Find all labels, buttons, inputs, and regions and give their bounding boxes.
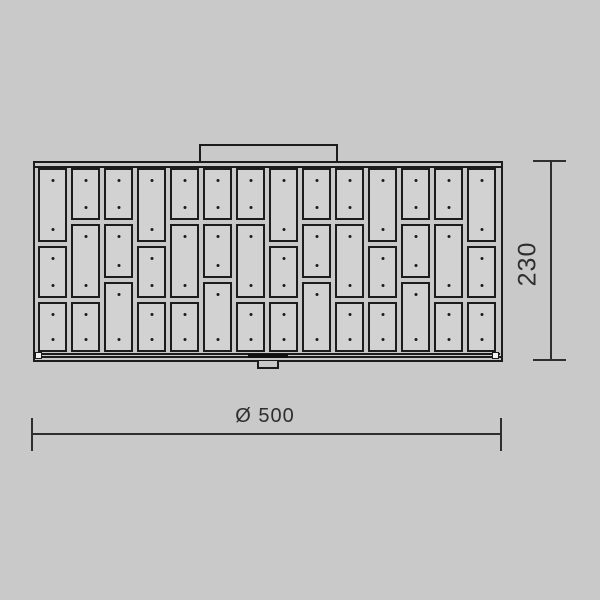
panel xyxy=(104,168,133,220)
height-dimension-line xyxy=(550,161,552,361)
panel xyxy=(368,168,397,242)
panel xyxy=(236,302,265,352)
panel xyxy=(38,302,67,352)
panel xyxy=(71,302,100,352)
panel xyxy=(335,224,364,298)
panel xyxy=(401,168,430,220)
width-dimension-tick-right xyxy=(500,418,502,451)
panel xyxy=(434,168,463,220)
panel xyxy=(71,224,100,298)
panel xyxy=(38,168,67,242)
panel xyxy=(467,246,496,298)
panel xyxy=(203,282,232,352)
panel xyxy=(368,246,397,298)
panel xyxy=(203,224,232,278)
height-dimension-tick-top xyxy=(533,160,566,162)
panel xyxy=(38,246,67,298)
bottom-mount-tab xyxy=(257,361,279,369)
width-dimension-label: Ø 500 xyxy=(235,406,294,426)
panel xyxy=(434,224,463,298)
panel xyxy=(236,224,265,298)
panel xyxy=(434,302,463,352)
panel xyxy=(269,246,298,298)
panel xyxy=(368,302,397,352)
panel xyxy=(170,168,199,220)
panel xyxy=(170,224,199,298)
panel xyxy=(467,168,496,242)
panel xyxy=(467,302,496,352)
bottom-left-notch xyxy=(35,352,42,359)
panel xyxy=(137,302,166,352)
panel xyxy=(104,282,133,352)
panel xyxy=(236,168,265,220)
panel xyxy=(137,168,166,242)
height-dimension-label: 230 xyxy=(516,242,541,287)
panel xyxy=(302,224,331,278)
width-dimension-line xyxy=(31,433,502,435)
panel xyxy=(401,224,430,278)
width-dimension-tick-left xyxy=(31,418,33,451)
panel xyxy=(137,246,166,298)
panel xyxy=(269,302,298,352)
height-dimension-tick-bottom xyxy=(533,359,566,361)
bottom-right-notch xyxy=(492,352,499,359)
panel xyxy=(269,168,298,242)
bottom-center-bracket xyxy=(248,354,288,358)
panel xyxy=(335,302,364,352)
panel xyxy=(170,302,199,352)
panel-grid xyxy=(38,168,500,352)
technical-drawing-page: 230 Ø 500 xyxy=(0,0,600,600)
panel xyxy=(302,168,331,220)
panel xyxy=(71,168,100,220)
panel xyxy=(104,224,133,278)
panel xyxy=(302,282,331,352)
panel xyxy=(335,168,364,220)
panel xyxy=(401,282,430,352)
panel xyxy=(203,168,232,220)
